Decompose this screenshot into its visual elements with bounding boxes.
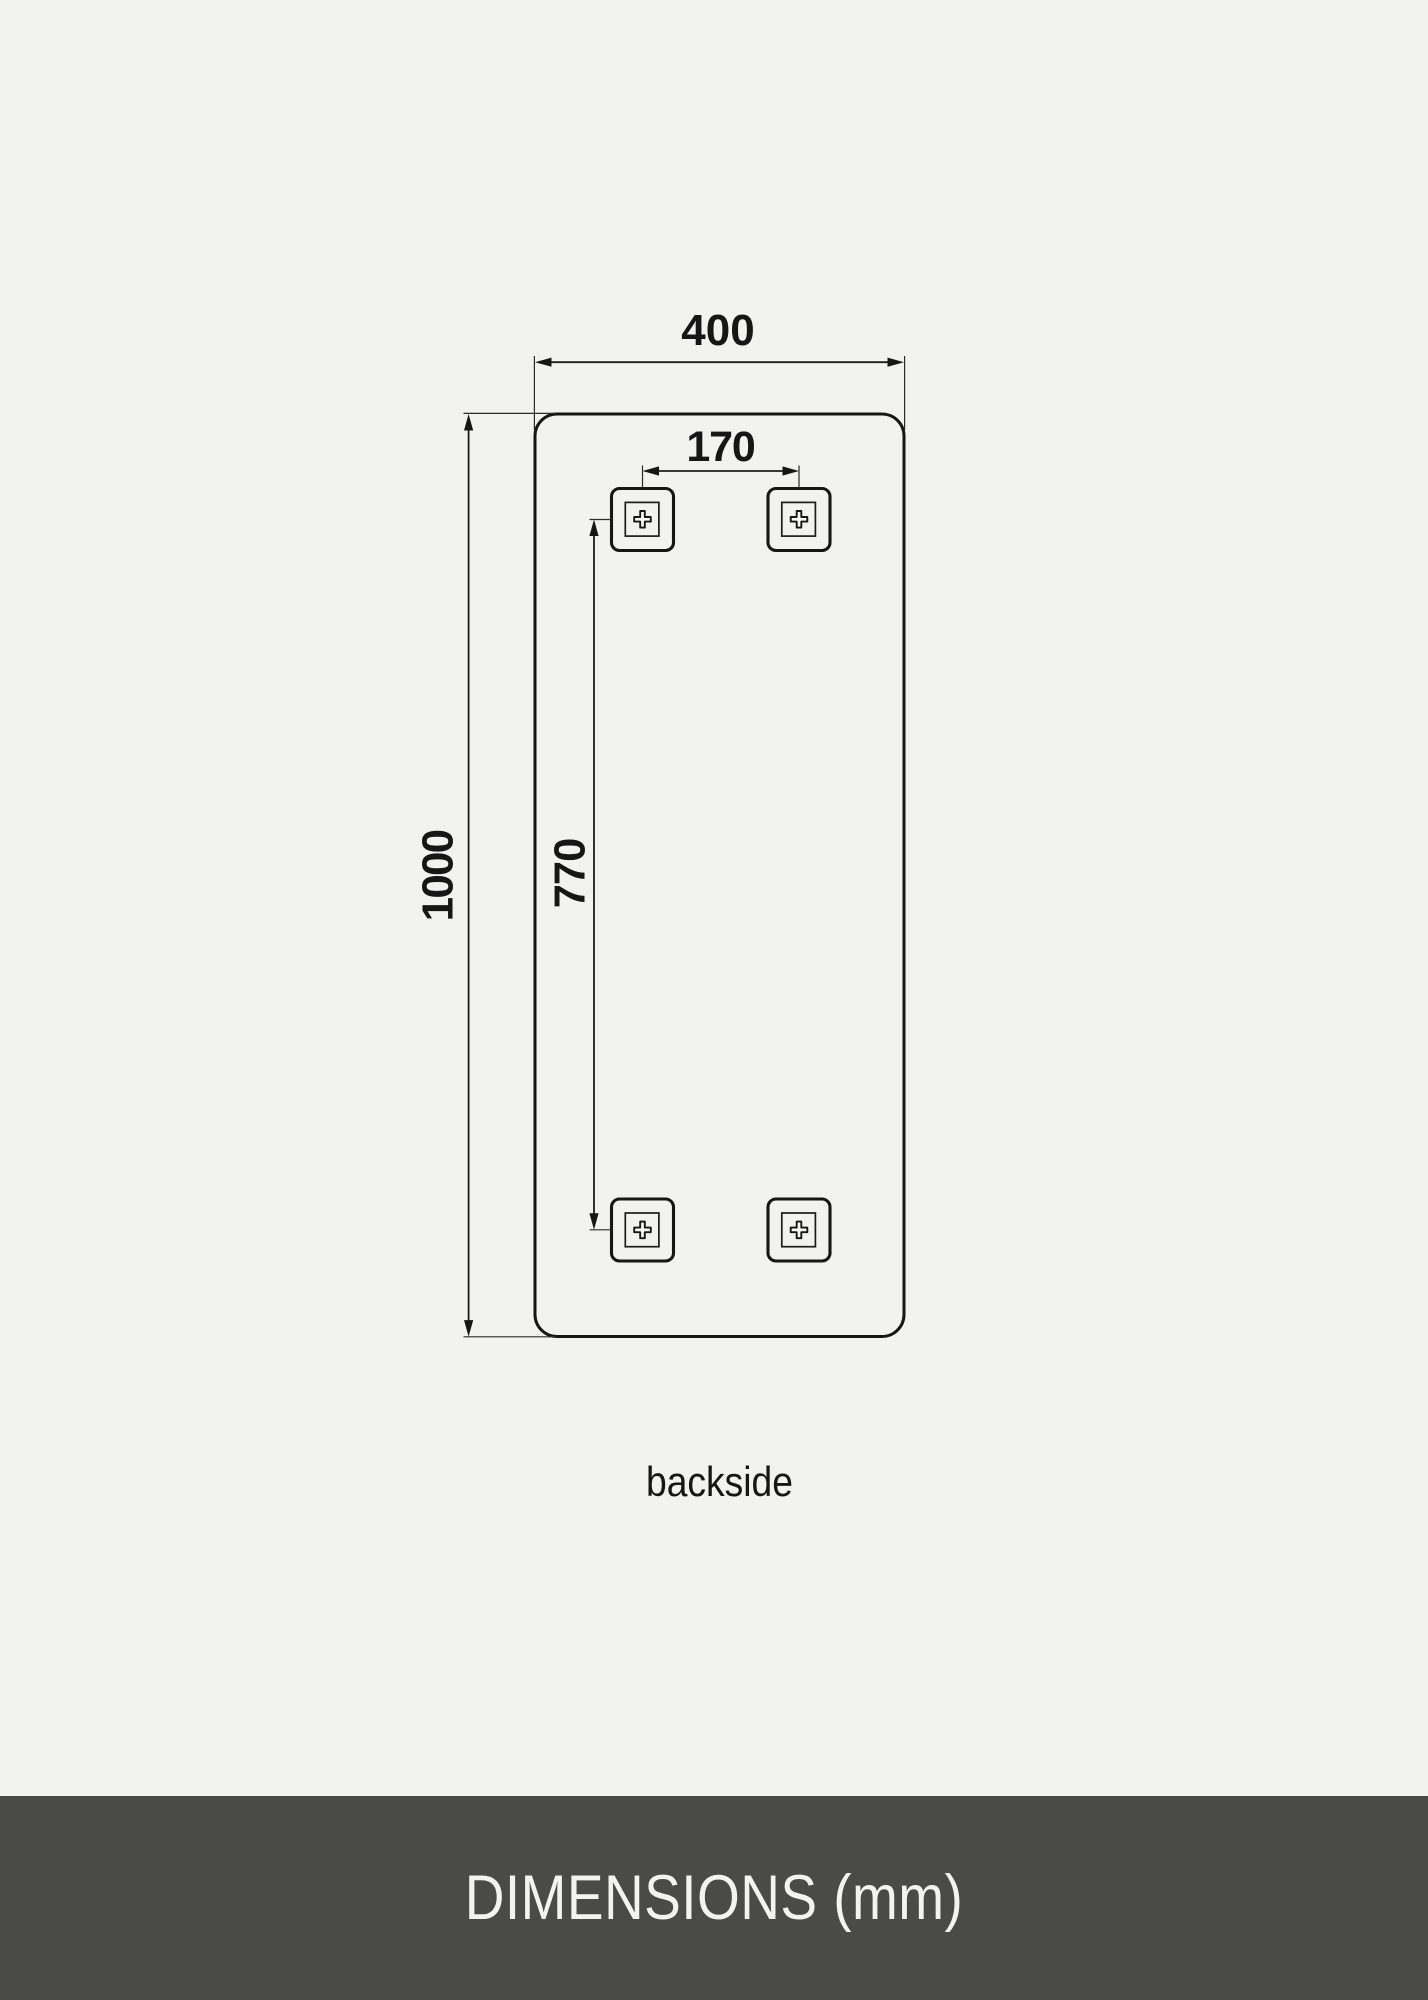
svg-text:1000: 1000: [414, 830, 463, 921]
svg-text:170: 170: [686, 423, 754, 471]
svg-text:backside: backside: [646, 1459, 793, 1506]
svg-text:400: 400: [681, 306, 754, 355]
svg-text:770: 770: [547, 839, 595, 909]
